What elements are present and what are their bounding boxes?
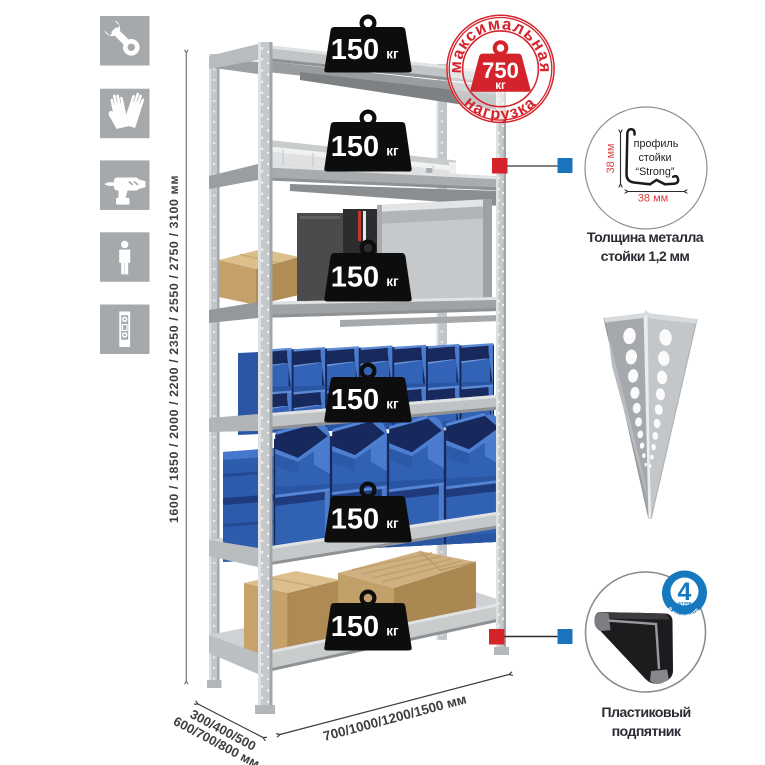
svg-text:38 мм: 38 мм bbox=[638, 193, 668, 205]
svg-text:Толщина металла: Толщина металла bbox=[587, 230, 704, 246]
svg-text:кг: кг bbox=[386, 624, 399, 639]
svg-text:Пластиковый: Пластиковый bbox=[601, 705, 690, 721]
svg-text:профиль: профиль bbox=[634, 138, 679, 150]
svg-text:1600 / 1850 / 2000 / 2200 / 23: 1600 / 1850 / 2000 / 2200 / 2350 / 2550 … bbox=[167, 175, 181, 523]
svg-text:кг: кг bbox=[386, 144, 399, 159]
svg-text:150: 150 bbox=[331, 34, 379, 66]
svg-text:38 мм: 38 мм bbox=[605, 144, 617, 174]
svg-text:кг: кг bbox=[386, 47, 399, 62]
svg-text:150: 150 bbox=[331, 384, 379, 416]
svg-text:штуки: штуки bbox=[678, 601, 692, 606]
svg-text:стойки: стойки bbox=[638, 152, 671, 164]
svg-text:150: 150 bbox=[331, 611, 379, 643]
svg-text:“Strong”: “Strong” bbox=[635, 166, 674, 178]
svg-text:кг: кг bbox=[495, 80, 506, 92]
svg-text:кг: кг bbox=[386, 274, 399, 289]
svg-text:150: 150 bbox=[331, 504, 379, 536]
svg-text:стойки 1,2 мм: стойки 1,2 мм bbox=[601, 249, 690, 265]
svg-text:150: 150 bbox=[331, 262, 379, 294]
svg-text:кг: кг bbox=[386, 516, 399, 531]
svg-text:кг: кг bbox=[386, 397, 399, 412]
svg-text:150: 150 bbox=[331, 131, 379, 163]
svg-text:подпятник: подпятник bbox=[612, 724, 682, 740]
